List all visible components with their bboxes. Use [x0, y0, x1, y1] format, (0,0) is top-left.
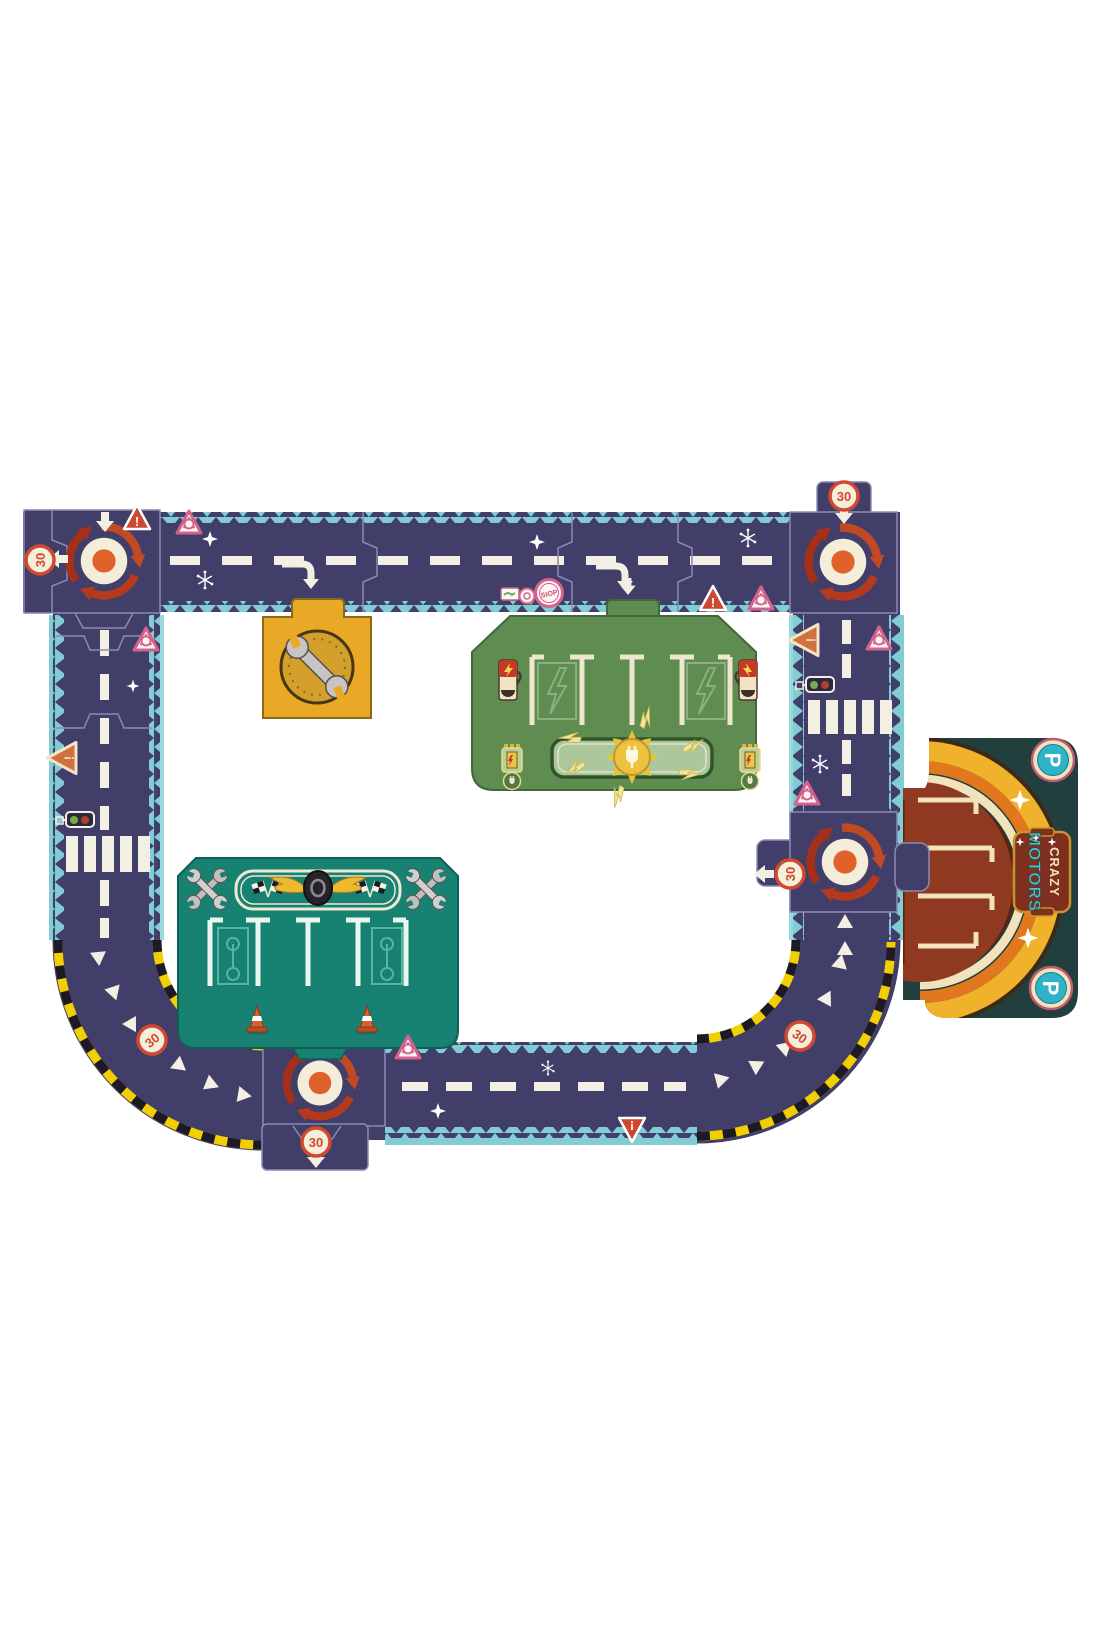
roundabout-piece-mid-right — [757, 812, 897, 912]
product-photo-crazy-motors-puzzle: 30 ! ! — [0, 0, 1100, 1650]
puzzle-track-illustration: 30 ! ! — [0, 0, 1100, 1650]
pit-stop-piece — [178, 858, 458, 1059]
parking-p-badge: P — [1030, 967, 1072, 1009]
garage-wrench-piece — [263, 599, 371, 718]
svg-text:P: P — [1040, 753, 1065, 768]
svg-text:CRAZY: CRAZY — [1047, 847, 1062, 897]
charging-station-piece — [472, 600, 760, 809]
road-tab — [895, 843, 929, 891]
svg-text:MOTORS: MOTORS — [1025, 832, 1044, 912]
parking-p-badge: P — [1032, 739, 1074, 781]
svg-text:P: P — [1038, 981, 1063, 996]
crazy-motors-logo: CRAZY MOTORS — [1014, 828, 1070, 916]
stop-sign-icon: StOP — [536, 580, 563, 607]
curve-bottom-right — [697, 940, 847, 1090]
